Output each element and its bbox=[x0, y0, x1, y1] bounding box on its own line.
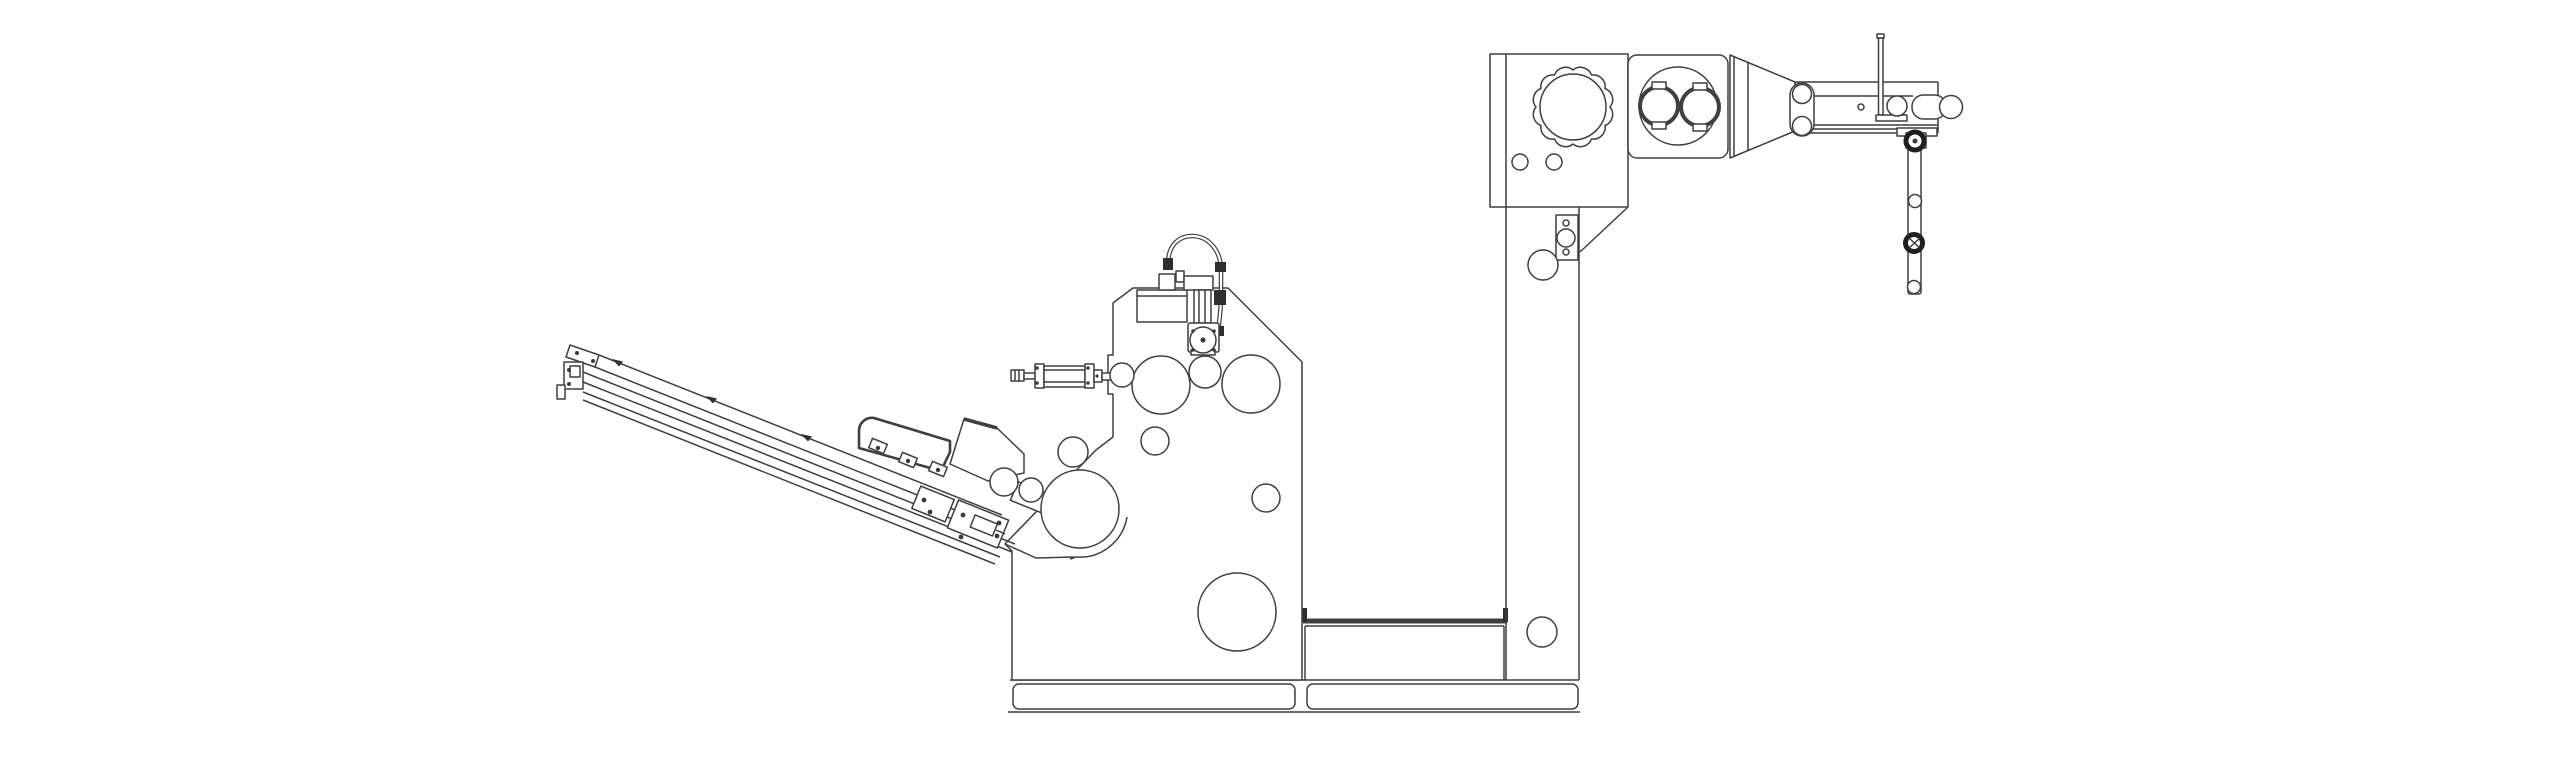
screw bbox=[591, 359, 595, 363]
valve-flag bbox=[1176, 271, 1184, 282]
infeed-ramp bbox=[557, 345, 1015, 564]
column-gusset bbox=[1580, 207, 1628, 252]
hose-fitting bbox=[1214, 290, 1226, 305]
hose-fitting bbox=[1215, 262, 1226, 272]
inlet-box bbox=[1159, 274, 1175, 290]
flange-bolt bbox=[1191, 329, 1195, 333]
screw bbox=[936, 468, 940, 472]
dancer-bar bbox=[1908, 141, 1921, 294]
dancer-pivot-pin bbox=[1913, 139, 1918, 144]
unwind-box bbox=[1490, 54, 1628, 207]
panel-hole bbox=[1512, 154, 1528, 170]
drive-roller bbox=[1198, 573, 1276, 651]
arm-roller bbox=[1887, 96, 1907, 116]
screw bbox=[575, 351, 579, 355]
screw bbox=[959, 535, 964, 540]
peel-roller bbox=[1019, 478, 1043, 502]
tie-rod-nut bbox=[1035, 366, 1039, 370]
screw bbox=[961, 513, 966, 518]
roller-tab bbox=[1652, 82, 1666, 89]
nip-roller bbox=[1681, 88, 1719, 126]
screw bbox=[906, 459, 910, 463]
unwind-circles bbox=[1512, 74, 1606, 170]
cad-canvas bbox=[0, 0, 2560, 775]
arm-mount-bracket bbox=[1730, 55, 1795, 158]
unwind-chuck bbox=[1540, 74, 1606, 140]
column-hole bbox=[1563, 220, 1569, 226]
cylinder-body bbox=[1044, 366, 1085, 387]
machine-side-elevation-drawing bbox=[0, 0, 2560, 775]
tie-rod-nut bbox=[1086, 381, 1090, 385]
bracket-outline bbox=[1730, 55, 1795, 158]
flange-bolt bbox=[1212, 329, 1216, 333]
gear-block bbox=[1137, 290, 1187, 322]
column-hole bbox=[1563, 249, 1569, 255]
peel-roller bbox=[990, 468, 1018, 496]
valve-top bbox=[1184, 276, 1213, 290]
bracket-roller bbox=[1557, 229, 1575, 247]
roller-tab bbox=[1693, 83, 1707, 90]
piston-rod bbox=[1024, 373, 1035, 379]
column-roller bbox=[1527, 617, 1557, 647]
column-circles bbox=[1527, 220, 1575, 647]
screw bbox=[567, 368, 571, 372]
cross-beam bbox=[1302, 608, 1508, 680]
tie-rod-nut bbox=[1086, 366, 1090, 370]
rod-plate bbox=[1876, 115, 1907, 121]
frame-hole bbox=[1252, 484, 1280, 512]
roller-tab bbox=[1693, 124, 1707, 131]
support-column bbox=[1506, 54, 1628, 680]
ramp-rails bbox=[583, 355, 1015, 564]
machine-base bbox=[1008, 680, 1580, 712]
ramp-end-step bbox=[557, 385, 565, 399]
arm-hole bbox=[1858, 104, 1864, 110]
column-edges bbox=[1506, 54, 1579, 680]
support-arm bbox=[1790, 34, 1963, 294]
arm-roller bbox=[1793, 85, 1812, 104]
guide-roller bbox=[1132, 356, 1190, 414]
end-roller-cap bbox=[1940, 96, 1963, 119]
flange-center bbox=[1200, 337, 1205, 342]
screw bbox=[922, 498, 927, 503]
foot-pad-left bbox=[1013, 684, 1295, 709]
guide-roller bbox=[1141, 427, 1169, 455]
nip-roller bbox=[1640, 87, 1678, 125]
screw bbox=[997, 521, 1002, 526]
edge-roller bbox=[1110, 363, 1134, 387]
mount-plate-upper bbox=[912, 486, 954, 522]
clevis-pin bbox=[1095, 374, 1098, 377]
flange-bolt bbox=[1212, 348, 1216, 352]
column-roller bbox=[1528, 250, 1558, 280]
nip-roller-box bbox=[1628, 55, 1728, 158]
arrow-icon bbox=[706, 396, 717, 404]
press-roller bbox=[1041, 470, 1119, 548]
rod-end-nut bbox=[1011, 370, 1024, 381]
screw bbox=[876, 446, 880, 450]
valve-stem bbox=[1194, 290, 1211, 323]
screw bbox=[928, 510, 933, 515]
panel-hole bbox=[1546, 154, 1562, 170]
idler-roller bbox=[1058, 437, 1088, 467]
screw bbox=[567, 382, 571, 386]
foot-pad-right bbox=[1307, 684, 1578, 709]
beam-panel bbox=[1305, 626, 1504, 680]
arrow-icon bbox=[801, 434, 812, 442]
flange-bolt bbox=[1191, 348, 1195, 352]
guide-roller bbox=[1222, 355, 1280, 413]
sensor-rod bbox=[1879, 38, 1884, 115]
dancer-roller bbox=[1908, 281, 1921, 294]
hose-fitting bbox=[1163, 258, 1173, 270]
dancer-roller bbox=[1909, 195, 1922, 208]
arm-roller bbox=[1793, 117, 1812, 136]
roller-tab bbox=[1652, 122, 1666, 129]
screw bbox=[995, 534, 1000, 539]
arrow-icon bbox=[612, 359, 623, 367]
tie-rod-nut bbox=[1035, 381, 1039, 385]
guide-roller bbox=[1189, 356, 1221, 388]
